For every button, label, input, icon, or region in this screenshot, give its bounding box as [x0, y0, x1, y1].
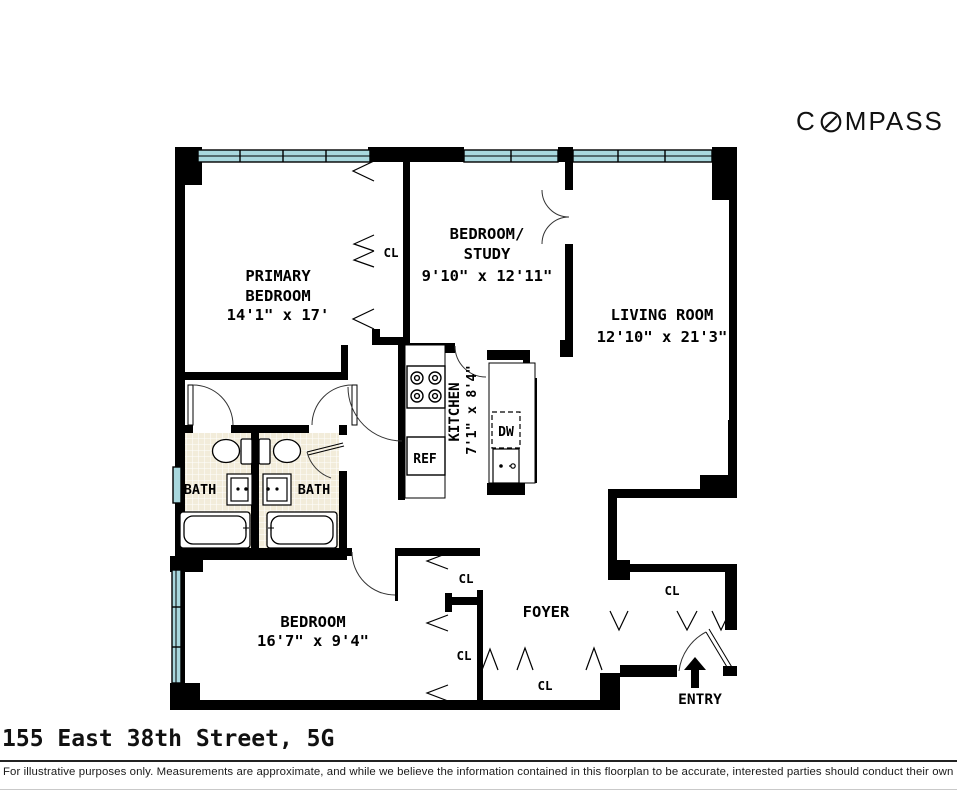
bifold-foyer-closet-3 [586, 648, 602, 670]
vanity-right [263, 474, 291, 505]
toilet-right [259, 439, 301, 464]
bifold-primary-bottom [353, 309, 374, 329]
bathtub-left [180, 512, 250, 548]
label-primary-bedroom-2: BEDROOM [245, 287, 310, 305]
disclaimer-text: For illustrative purposes only. Measurem… [3, 766, 957, 778]
label-primary-bedroom-1: PRIMARY [245, 267, 311, 285]
door-french-study [542, 190, 569, 244]
label-closet-entry: CL [664, 583, 680, 598]
label-closet-bedroom-upper: CL [458, 571, 474, 586]
bathtub-right [267, 512, 337, 548]
vanity-left [227, 474, 252, 505]
entry-arrow-icon [684, 657, 706, 688]
window-top-right [573, 150, 712, 162]
label-foyer: FOYER [523, 603, 570, 621]
label-dishwasher: DW [498, 425, 514, 440]
label-kitchen: KITCHEN [447, 382, 463, 441]
toilet-left [213, 439, 253, 464]
label-kitchen-dims: 7'1" x 8'4" [464, 365, 480, 454]
label-primary-bedroom-dims: 14'1" x 17' [227, 306, 330, 324]
title-divider [0, 760, 957, 762]
label-living-room: LIVING ROOM [611, 306, 714, 324]
label-closet-foyer: CL [537, 678, 553, 693]
label-bath-right: BATH [298, 482, 331, 498]
door-bedroom [352, 552, 395, 595]
bifold-bedroom-closet-3 [427, 685, 448, 701]
kitchen-sink [493, 449, 519, 483]
bifold-foyer-closet-2 [517, 648, 533, 670]
label-bath-left: BATH [184, 482, 217, 498]
door-bath-left [188, 385, 233, 425]
label-study-1: BEDROOM/ [450, 225, 525, 243]
label-entry: ENTRY [678, 692, 722, 708]
stove [407, 366, 445, 408]
label-bedroom: BEDROOM [280, 613, 345, 631]
floorplan-drawing: PRIMARY BEDROOM 14'1" x 17' BEDROOM/ STU… [0, 0, 957, 800]
bifold-foyer-closet-1 [482, 649, 498, 670]
window-bath-left [173, 467, 181, 503]
window-bedroom-left [172, 570, 181, 683]
bifold-entry-closet-2 [677, 611, 697, 630]
window-top-middle [464, 150, 558, 162]
bifold-primary-top [353, 161, 374, 181]
floorplan-page: C MPASS [0, 0, 957, 800]
bifold-entry-closet-1 [610, 611, 628, 630]
bifold-primary-closet [354, 235, 374, 267]
door-entry [679, 629, 733, 672]
label-living-room-dims: 12'10" x 21'3" [597, 328, 728, 346]
bottom-divider [0, 789, 957, 790]
label-closet-bedroom-lower: CL [456, 648, 472, 663]
label-study-2: STUDY [464, 245, 511, 263]
address-title: 155 East 38th Street, 5G [2, 726, 334, 752]
label-closet-primary: CL [383, 245, 399, 260]
window-top-left [198, 150, 370, 162]
label-bedroom-dims: 16'7" x 9'4" [257, 632, 369, 650]
label-refrigerator: REF [413, 452, 437, 467]
label-study-dims: 9'10" x 12'11" [422, 267, 553, 285]
door-bath-strip-right [312, 385, 357, 425]
bifold-bedroom-closet-2 [427, 615, 448, 631]
